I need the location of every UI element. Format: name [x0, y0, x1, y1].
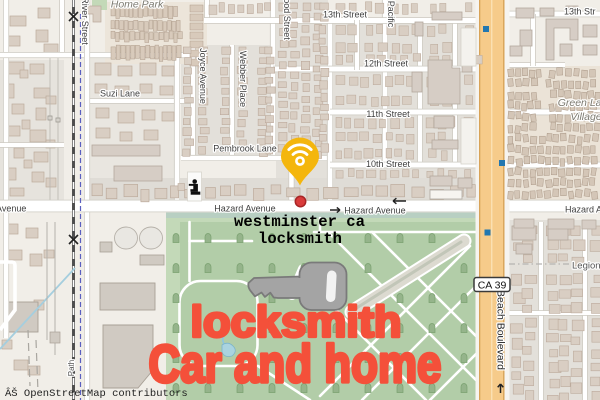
svg-text:Car and home: Car and home	[149, 335, 442, 394]
svg-text:Hazard Av: Hazard Av	[565, 205, 600, 215]
svg-text:Webber Place: Webber Place	[238, 51, 248, 107]
svg-text:ood Street: ood Street	[282, 0, 292, 40]
svg-text:Hazard Avenue: Hazard Avenue	[214, 204, 275, 214]
svg-text:CA 39: CA 39	[478, 280, 507, 292]
svg-text:Hazard Avenue: Hazard Avenue	[0, 204, 26, 214]
svg-text:River Street: River Street	[80, 0, 90, 45]
svg-text:11th Street: 11th Street	[366, 109, 410, 119]
svg-text:12th Street: 12th Street	[364, 59, 409, 69]
svg-text:Beach Boulevard: Beach Boulevard	[495, 290, 507, 370]
svg-text:Green Lant: Green Lant	[558, 97, 600, 109]
svg-text:Home Park: Home Park	[111, 0, 164, 11]
svg-text:locksmith: locksmith	[258, 230, 342, 248]
svg-text:13th Street: 13th Street	[323, 10, 368, 20]
svg-text:Suzi Lane: Suzi Lane	[100, 89, 140, 99]
svg-text:ÂŠ OpenStreetMap contributors: ÂŠ OpenStreetMap contributors	[5, 386, 188, 400]
svg-text:10th Street: 10th Street	[366, 159, 411, 169]
svg-text:Pacific: Pacific	[386, 1, 396, 28]
svg-text:13th Str: 13th Str	[564, 7, 596, 17]
svg-text:Path: Path	[67, 360, 76, 376]
svg-text:Pembrook Lane: Pembrook Lane	[213, 144, 277, 154]
svg-text:Legion: Legion	[572, 261, 600, 272]
svg-text:Joyce Avenue: Joyce Avenue	[198, 48, 208, 104]
svg-text:westminster ca: westminster ca	[234, 213, 365, 231]
svg-text:Village: Village	[570, 111, 600, 123]
